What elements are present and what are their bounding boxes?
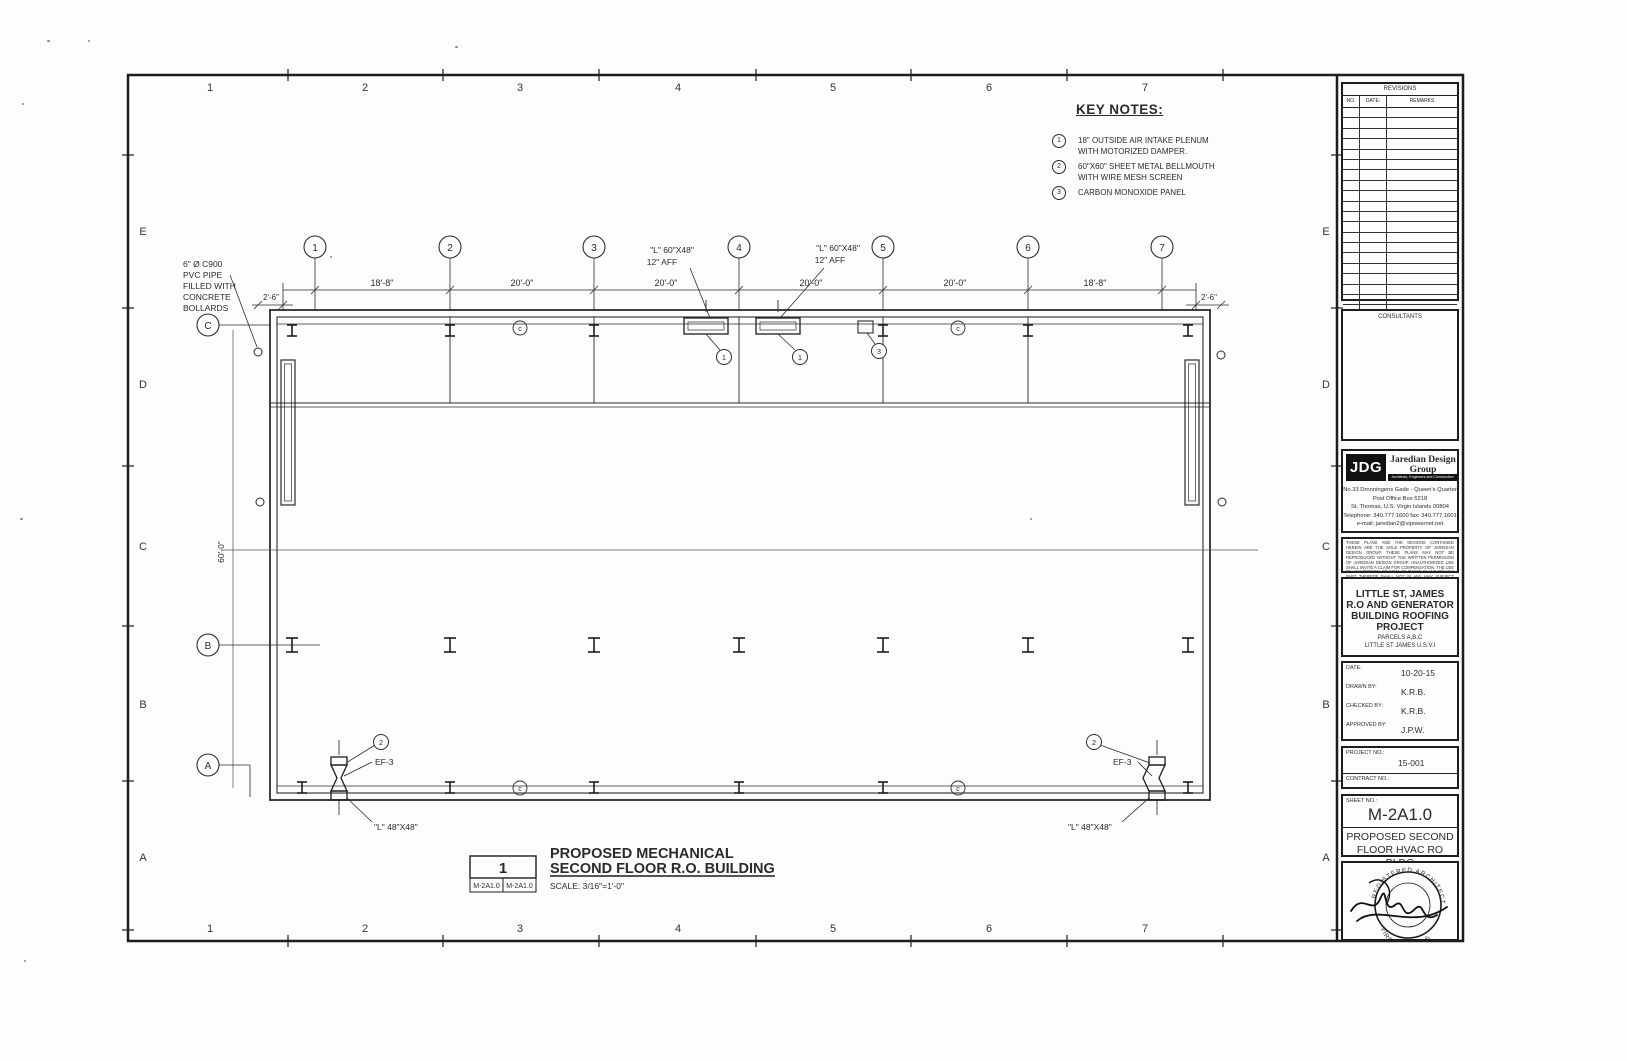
field-value: K.R.B.	[1401, 706, 1426, 716]
revision-row	[1343, 212, 1457, 222]
wall-louver-right	[1185, 360, 1199, 505]
drawing-sheet: 1 2 3 4 5 6 7 18'-8" 20'-0" 20'-0" 20'-0…	[0, 0, 1627, 1061]
column-mark-label: c	[956, 326, 960, 333]
fan-tag: EF-3	[375, 757, 394, 767]
revision-row	[1343, 202, 1457, 212]
detail-number: 1	[499, 860, 507, 877]
margin-row-label: B	[1322, 699, 1329, 711]
project-title-line: PROJECT	[1343, 622, 1457, 633]
firm-address-line: No.33 Dronningens Gade - Queen's Quarter	[1343, 486, 1457, 495]
co-panel	[858, 321, 873, 333]
dim-text: 18'-8"	[1084, 278, 1107, 288]
firm-address-line: Post Office Box 6218	[1343, 495, 1457, 504]
project-subtitle-line: PARCELS A,B,C	[1343, 635, 1457, 643]
detail-sheet-ref: M-2A1.0	[473, 883, 500, 890]
column-mark-label: c	[518, 326, 522, 333]
row-bubble-label: C	[204, 321, 211, 332]
revision-row	[1343, 222, 1457, 232]
firm-tagline: Architects, Engineers and Construction M…	[1388, 474, 1457, 481]
keynote-number-bubble: 3	[1052, 186, 1066, 200]
architect-stamp: REGISTERED ARCHITECT VIRGIN ISLANDS	[1343, 863, 1457, 939]
key-notes-title: KEY NOTES:	[1076, 102, 1163, 117]
margin-col-label: 5	[830, 923, 836, 935]
grid-bubble-label: 6	[1025, 243, 1031, 254]
key-note-line: WITH WIRE MESH SCREEN	[1078, 173, 1182, 182]
margin-col-label: 2	[362, 82, 368, 94]
revision-row	[1343, 191, 1457, 201]
margin-col-label: 6	[986, 82, 992, 94]
keynote-ref: 1	[722, 353, 726, 362]
key-note-text: 60"X60" SHEET METAL BELLMOUTHWITH WIRE M…	[1078, 161, 1248, 183]
revision-row	[1343, 253, 1457, 263]
margin-row-label: B	[139, 699, 146, 711]
margin-col-label: 7	[1142, 82, 1148, 94]
field-value: K.R.B.	[1401, 687, 1426, 697]
bollard-note-line: FILLED WITH	[183, 281, 236, 291]
bollard-note-line: CONCRETE	[183, 292, 231, 302]
margin-col-label: 1	[207, 923, 213, 935]
bollard-note-line: 6" Ø C900	[183, 259, 223, 269]
margin-col-label: 3	[517, 923, 523, 935]
dim-text: 20'-0"	[944, 278, 967, 288]
info-field: APPROVED BY: J.P.W.	[1343, 720, 1457, 739]
firm-address-line: Telephone: 340.777.1600 fax: 340.777.160…	[1343, 512, 1457, 521]
louver-label: "L" 60"X48"	[650, 245, 694, 255]
revision-row	[1343, 233, 1457, 243]
firm-address: No.33 Dronningens Gade - Queen's Quarter…	[1343, 486, 1457, 529]
key-note-line: WITH MOTORIZED DAMPER.	[1078, 147, 1187, 156]
louver-label: 12" AFF	[815, 255, 845, 265]
revision-row	[1343, 160, 1457, 170]
revisions-col-no: NO.	[1343, 96, 1360, 107]
grid-bubble-label: 3	[591, 243, 597, 254]
keynote-number-bubble: 2	[1052, 160, 1066, 174]
bollards	[254, 348, 1226, 506]
contract-no-label: CONTRACT NO.:	[1346, 776, 1389, 782]
revision-row	[1343, 129, 1457, 139]
dimension-line-top	[252, 286, 1229, 309]
firm-box: JDG Jaredian Design Group Architects, En…	[1341, 449, 1459, 533]
disclaimer-box: THESE PLANS AND THE DESIGNS CONTAINED HE…	[1341, 537, 1459, 573]
field-label: DATE:	[1346, 665, 1362, 671]
grid-lines-top	[283, 258, 1196, 310]
dim-text-vertical: 60'-0"	[216, 541, 226, 563]
margin-col-label: 4	[675, 82, 681, 94]
key-note-text: CARBON MONOXIDE PANEL	[1078, 187, 1248, 198]
margin-col-label: 7	[1142, 923, 1148, 935]
svg-text:VIRGIN ISLANDS: VIRGIN ISLANDS	[1379, 926, 1433, 939]
margin-col-label: 3	[517, 82, 523, 94]
fan-keynote-bubbles	[374, 735, 1102, 750]
intake-keynote-leaders	[690, 268, 875, 350]
bollard-note-line: BOLLARDS	[183, 303, 229, 313]
drawing-title-line2: SECOND FLOOR R.O. BUILDING	[550, 861, 775, 877]
project-box: LITTLE ST, JAMES R.O AND GENERATOR BUILD…	[1341, 577, 1459, 657]
consultants-box: CONSULTANTS	[1341, 309, 1459, 441]
key-note-line: CARBON MONOXIDE PANEL	[1078, 188, 1186, 197]
field-value: J.P.W.	[1401, 725, 1424, 735]
field-label: DRAWN BY:	[1346, 684, 1377, 690]
key-note-line: 60"X60" SHEET METAL BELLMOUTH	[1078, 162, 1215, 171]
fan-tag: EF-3	[1113, 757, 1132, 767]
margin-row-label: D	[1322, 379, 1330, 391]
stamp-text-top: REGISTERED ARCHITECT	[1371, 867, 1446, 905]
drawing-scale: SCALE: 3/16"=1'-0"	[550, 881, 624, 891]
stamp-text-bottom: VIRGIN ISLANDS	[1379, 926, 1433, 939]
project-no-value: 15-001	[1398, 758, 1424, 768]
margin-col-label: 1	[207, 82, 213, 94]
dim-text: 20'-0"	[511, 278, 534, 288]
field-label: CHECKED BY:	[1346, 703, 1383, 709]
firm-name: Jaredian Design Group	[1387, 455, 1459, 475]
revisions-title: REVISIONS	[1343, 84, 1457, 96]
partition-lines	[450, 317, 1028, 403]
revision-row	[1343, 181, 1457, 191]
row-bubble-label: B	[205, 641, 212, 652]
drawing-title-line1: PROPOSED MECHANICAL	[550, 846, 734, 862]
revisions-box: REVISIONS NO. DATE: REMARKS	[1341, 82, 1459, 301]
field-label: APPROVED BY:	[1346, 722, 1387, 728]
revisions-col-remarks: REMARKS	[1387, 96, 1457, 107]
grid-bubble-label: 7	[1159, 243, 1165, 254]
project-no-box: PROJECT NO.: 15-001 CONTRACT NO.:	[1341, 746, 1459, 789]
revision-row	[1343, 285, 1457, 295]
margin-row-label: C	[1322, 541, 1330, 553]
grid-bubble-label: 5	[880, 243, 886, 254]
wall-louver-left	[281, 360, 295, 505]
key-note-text: 18" OUTSIDE AIR INTAKE PLENUMWITH MOTORI…	[1078, 135, 1248, 157]
sheet-border	[128, 75, 1463, 941]
info-box: DATE: 10-20-15 DRAWN BY: K.R.B. CHECKED …	[1341, 661, 1459, 741]
firm-logo: JDG	[1346, 454, 1386, 481]
margin-row-label: E	[1322, 226, 1329, 238]
info-field: DRAWN BY: K.R.B.	[1343, 682, 1457, 701]
margin-col-label: 5	[830, 82, 836, 94]
detail-sheet-ref: M-2A1.0	[506, 883, 533, 890]
margin-ticks	[122, 69, 1343, 947]
revision-row	[1343, 274, 1457, 284]
column-mark-label: c	[518, 786, 522, 793]
margin-col-label: 2	[362, 923, 368, 935]
margin-row-label: E	[139, 226, 146, 238]
keynote-ref: 1	[798, 353, 802, 362]
revision-row	[1343, 108, 1457, 118]
firm-address-line: e-mail: jaredian2@vipowernet.net	[1343, 520, 1457, 529]
revision-row	[1343, 170, 1457, 180]
grid-bubble-label: 1	[312, 243, 318, 254]
margin-row-label: C	[139, 541, 147, 553]
revision-row	[1343, 243, 1457, 253]
project-subtitle-line: LITTLE ST JAMES U.S.V.I	[1343, 643, 1457, 651]
fan-leaders	[344, 745, 1152, 822]
exhaust-fan-left	[331, 740, 347, 815]
revision-row	[1343, 139, 1457, 149]
grid-bubble-label: 2	[447, 243, 453, 254]
dim-text: 18'-8"	[371, 278, 394, 288]
sheet-title-line: PROPOSED SECOND	[1343, 831, 1457, 844]
keynote-number-bubble: 1	[1052, 134, 1066, 148]
project-title-line: BUILDING ROOFING	[1343, 611, 1457, 622]
sheet-no-label: SHEET NO.:	[1346, 798, 1377, 804]
margin-col-label: 6	[986, 923, 992, 935]
revision-row	[1343, 264, 1457, 274]
column-mark-label: c	[956, 786, 960, 793]
stamp-box: REGISTERED ARCHITECT VIRGIN ISLANDS	[1341, 861, 1459, 941]
exhaust-fan-right	[1143, 740, 1165, 815]
bollard-note-line: PVC PIPE	[183, 270, 223, 280]
revisions-rows	[1343, 108, 1457, 316]
dim-text: 2'-6"	[263, 293, 279, 302]
building-walls	[270, 310, 1210, 800]
dim-text: 20'-0"	[655, 278, 678, 288]
revisions-col-date: DATE:	[1360, 96, 1387, 107]
info-field: DATE: 10-20-15	[1343, 663, 1457, 682]
louver-label: "L" 60"X48"	[816, 243, 860, 253]
margin-row-label: A	[139, 852, 146, 864]
key-note-line: 18" OUTSIDE AIR INTAKE PLENUM	[1078, 136, 1209, 145]
sheet-no-box: SHEET NO.: M-2A1.0 PROPOSED SECOND FLOOR…	[1341, 794, 1459, 857]
project-title-line: LITTLE ST, JAMES	[1343, 589, 1457, 600]
keynote-ref: 2	[379, 738, 383, 747]
margin-col-label: 4	[675, 923, 681, 935]
revision-row	[1343, 118, 1457, 128]
svg-text:REGISTERED ARCHITECT: REGISTERED ARCHITECT	[1371, 867, 1446, 905]
bollard-note-leader	[230, 275, 257, 347]
margin-row-label: D	[139, 379, 147, 391]
louver-bottom-label: "L" 48"X48"	[374, 822, 418, 832]
louver-label: 12" AFF	[647, 257, 677, 267]
field-value: 10-20-15	[1401, 668, 1435, 678]
margin-row-label: A	[1322, 852, 1329, 864]
dim-text: 2'-6"	[1201, 293, 1217, 302]
row-bubble-label: A	[205, 761, 212, 772]
keynote-ref: 2	[1092, 738, 1096, 747]
project-title-line: R.O AND GENERATOR	[1343, 600, 1457, 611]
revision-row	[1343, 150, 1457, 160]
signature	[1351, 893, 1447, 921]
firm-address-line: St. Thomas, U.S. Virgin Islands 00804	[1343, 503, 1457, 512]
revision-row	[1343, 295, 1457, 305]
keynote-ref: 3	[877, 347, 881, 356]
consultants-title: CONSULTANTS	[1343, 311, 1457, 320]
column-ibeams	[286, 325, 1194, 793]
project-no-label: PROJECT NO.:	[1346, 750, 1384, 756]
info-field: CHECKED BY: K.R.B.	[1343, 701, 1457, 720]
louver-bottom-label: "L" 48"X48"	[1068, 822, 1112, 832]
grid-bubble-label: 4	[736, 243, 742, 254]
